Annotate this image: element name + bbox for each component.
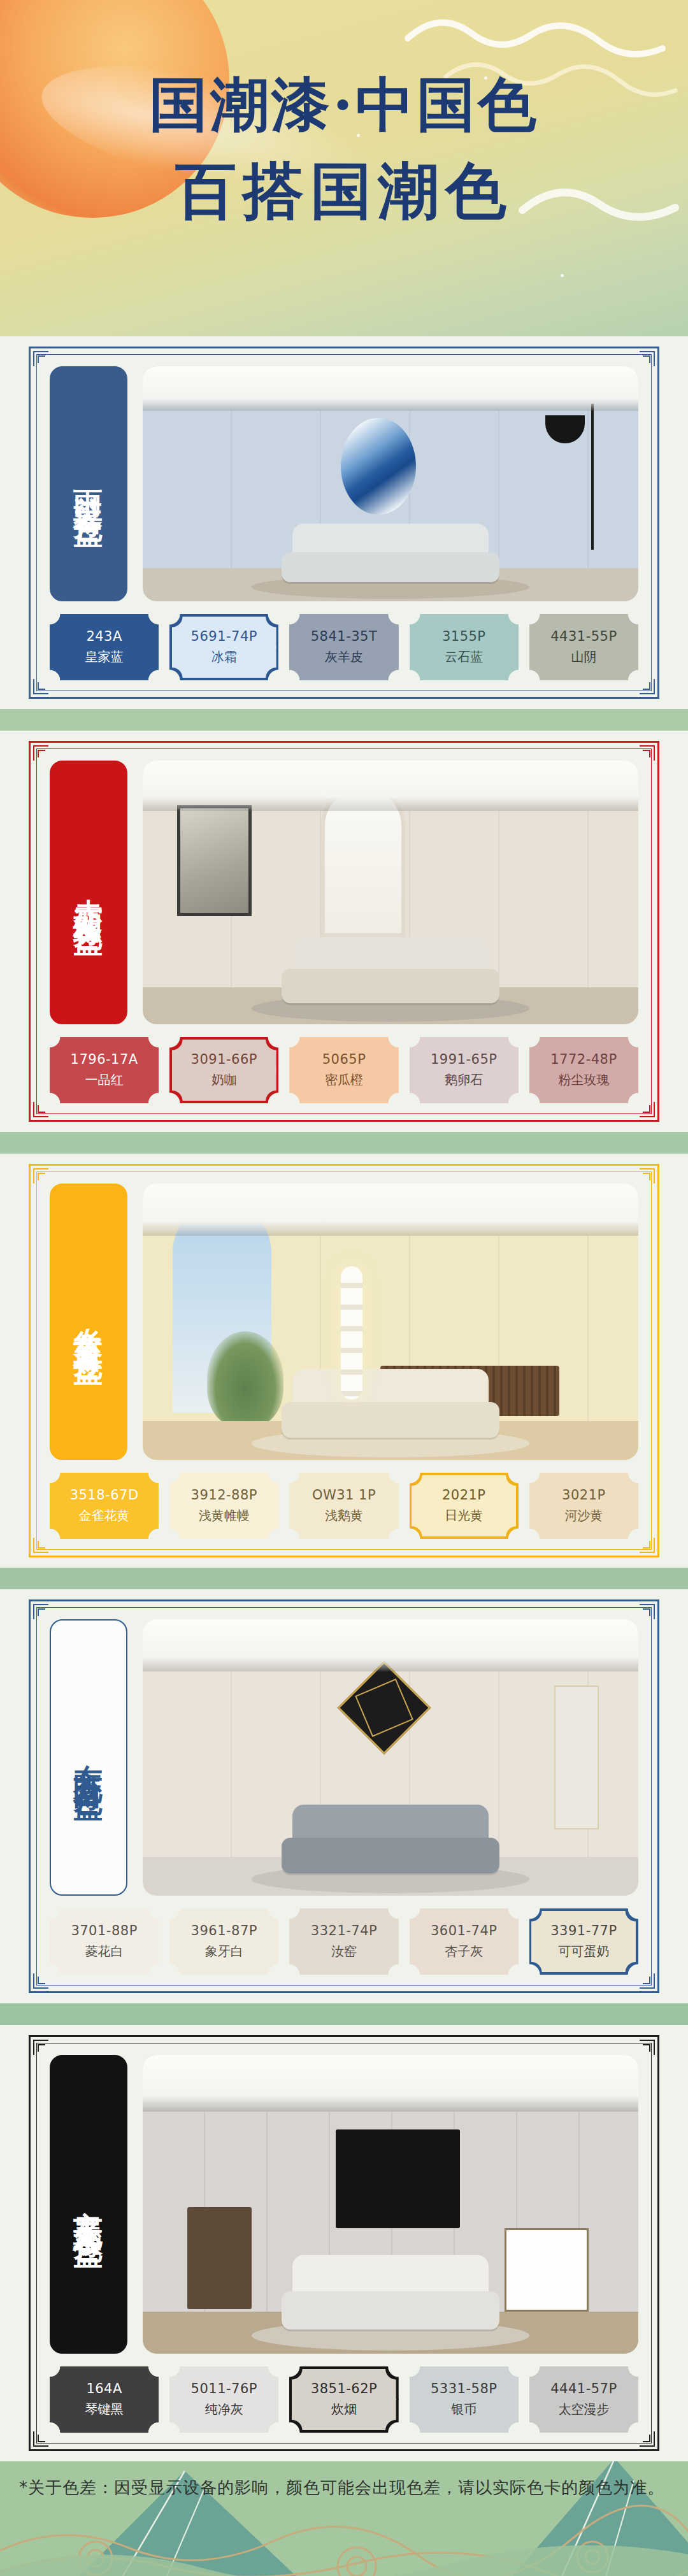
frame-corner-ornament xyxy=(640,1604,655,1619)
color-swatch: 4441-57P太空漫步 xyxy=(529,2366,638,2433)
poster-page: 国潮漆·中国色 百搭国潮色 雨过天青色盘 xyxy=(0,0,688,2576)
swatch-name: 一品红 xyxy=(85,1071,124,1089)
palette-title-banner: 炎黄至尊色盘 xyxy=(50,1184,127,1460)
swatch-name: 奶咖 xyxy=(211,1071,237,1089)
swatch-name: 皇家蓝 xyxy=(85,648,124,666)
swatch-code: 4441-57P xyxy=(550,2381,617,2396)
swatch-name: 琴键黑 xyxy=(85,2401,124,2418)
frame-corner-ornament xyxy=(640,1168,655,1184)
paper-lamp xyxy=(341,1266,362,1399)
swatch-code: 3321-74P xyxy=(311,1923,377,1938)
card-frame: 雨过天青色盘 243A皇家蓝5691-74P冰霜5841-35T灰羊皮3155P… xyxy=(29,347,659,699)
color-swatch: 1796-17A一品红 xyxy=(50,1037,159,1103)
palette-title-banner: 赤霞如练色盘 xyxy=(50,761,127,1024)
swatch-code: 3701-88P xyxy=(71,1923,137,1938)
color-disclaimer: *关于色差：因受显示设备的影响，颜色可能会出现色差，请以实际色卡的颜色为准。 xyxy=(19,2477,664,2499)
swatch-code: 1796-17A xyxy=(71,1052,138,1067)
sofa xyxy=(282,937,499,1003)
frame-corner-ornament xyxy=(33,1102,48,1117)
frame-corner-ornament xyxy=(33,1538,48,1553)
frame-corner-ornament xyxy=(33,1168,48,1184)
swatch-name: 日光黄 xyxy=(445,1507,483,1524)
swatch-code: 3155P xyxy=(442,629,486,644)
color-swatch: 5065P密瓜橙 xyxy=(289,1037,398,1103)
swatch-code: 3851-62P xyxy=(311,2381,377,2396)
color-swatch: 3155P云石蓝 xyxy=(410,614,519,680)
swatch-code: 5331-58P xyxy=(431,2381,497,2396)
wall-art xyxy=(341,418,416,515)
palette-title-banner: 雨过天青色盘 xyxy=(50,366,127,601)
swatch-code: 1772-48P xyxy=(550,1052,617,1067)
sofa xyxy=(282,2255,499,2329)
swatch-row: 164A琴键黑5011-76P纯净灰3851-62P炊烟5331-58P银币44… xyxy=(50,2366,638,2433)
swatch-code: 5691-74P xyxy=(191,629,257,644)
frame-corner-ornament xyxy=(640,2431,655,2447)
swatch-name: 炊烟 xyxy=(331,2401,357,2418)
palette-card-dawn-white: 东方既白色盘 3701-88P菱花白3961-87P象牙白3321-74P汝窑3… xyxy=(0,1589,688,2003)
swatch-code: 164A xyxy=(86,2381,122,2396)
color-swatch: 3601-74P杏子灰 xyxy=(410,1908,519,1975)
page-title: 国潮漆·中国色 百搭国潮色 xyxy=(0,75,688,222)
room-photo xyxy=(143,761,638,1024)
swatch-row: 1796-17A一品红3091-66P奶咖5065P密瓜橙1991-65P鹅卵石… xyxy=(50,1037,638,1103)
palette-card-rain-sky-blue: 雨过天青色盘 243A皇家蓝5691-74P冰霜5841-35T灰羊皮3155P… xyxy=(0,336,688,709)
swatch-code: 3091-66P xyxy=(191,1052,257,1067)
swatch-code: 5011-76P xyxy=(191,2381,257,2396)
swatch-code: 3961-87P xyxy=(191,1923,257,1938)
color-swatch: 5011-76P纯净灰 xyxy=(169,2366,278,2433)
color-swatch: 3321-74P汝窑 xyxy=(289,1908,398,1975)
swatch-code: 2021P xyxy=(442,1487,486,1503)
color-swatch: 5841-35T灰羊皮 xyxy=(289,614,398,680)
swatch-row: 243A皇家蓝5691-74P冰霜5841-35T灰羊皮3155P云石蓝4431… xyxy=(50,614,638,680)
card-frame: 炎黄至尊色盘 3518-67D金雀花黄3912-88P浅黄帷幔OW31 1P浅鹅… xyxy=(29,1164,659,1557)
frame-corner-ornament xyxy=(33,351,48,366)
swatch-code: 3518-67D xyxy=(70,1487,139,1503)
swatch-name: 纯净灰 xyxy=(205,2401,243,2418)
swatch-name: 可可蛋奶 xyxy=(558,1943,609,1960)
framed-print xyxy=(505,2228,589,2312)
palette-card-ink-black: 玄墨无极色盘 164A琴键黑5011-76P纯净灰3851-62P炊烟5331-… xyxy=(0,2025,688,2461)
floor-lamp xyxy=(591,404,594,550)
color-swatch: 3091-66P奶咖 xyxy=(169,1037,278,1103)
swatch-name: 杏子灰 xyxy=(445,1943,483,1960)
frame-corner-ornament xyxy=(640,2040,655,2055)
swatch-name: 鹅卵石 xyxy=(445,1071,483,1089)
frame-corner-ornament xyxy=(640,745,655,761)
swatch-code: 243A xyxy=(86,629,122,644)
card-frame: 赤霞如练色盘 1796-17A一品红3091-66P奶咖5065P密瓜橙1991… xyxy=(29,741,659,1122)
swatch-name: 山阴 xyxy=(571,648,596,666)
potted-plant xyxy=(207,1331,283,1427)
color-swatch: 1991-65P鹅卵石 xyxy=(410,1037,519,1103)
poster-footer: *关于色差：因受显示设备的影响，颜色可能会出现色差，请以实际色卡的颜色为准。 xyxy=(0,2461,688,2576)
swatch-code: 4431-55P xyxy=(550,629,617,644)
tv-screen xyxy=(336,2129,460,2228)
swatch-name: 冰霜 xyxy=(211,648,237,666)
wall-art xyxy=(177,805,252,916)
room-photo xyxy=(143,2055,638,2354)
sofa xyxy=(282,1805,499,1874)
room-photo xyxy=(143,1619,638,1896)
frame-corner-ornament xyxy=(33,2431,48,2447)
swatch-code: 3391-77P xyxy=(550,1923,617,1938)
frame-corner-ornament xyxy=(33,679,48,694)
swatch-code: 3912-88P xyxy=(191,1487,257,1503)
palette-card-red-glow: 赤霞如练色盘 1796-17A一品红3091-66P奶咖5065P密瓜橙1991… xyxy=(0,731,688,1132)
sofa xyxy=(282,1369,499,1438)
swatch-name: 密瓜橙 xyxy=(325,1071,363,1089)
color-swatch: 4431-55P山阴 xyxy=(529,614,638,680)
swatch-name: 浅黄帷幔 xyxy=(199,1507,250,1524)
swatch-code: 3021P xyxy=(562,1487,606,1503)
card-frame: 玄墨无极色盘 164A琴键黑5011-76P纯净灰3851-62P炊烟5331-… xyxy=(29,2035,659,2451)
color-swatch: 3851-62P炊烟 xyxy=(289,2366,398,2433)
palette-title-banner: 玄墨无极色盘 xyxy=(50,2055,127,2354)
palette-card-imperial-yellow: 炎黄至尊色盘 3518-67D金雀花黄3912-88P浅黄帷幔OW31 1P浅鹅… xyxy=(0,1154,688,1568)
frame-corner-ornament xyxy=(33,745,48,761)
speck-decoration xyxy=(561,274,564,277)
frame-corner-ornament xyxy=(640,1102,655,1117)
swatch-code: OW31 1P xyxy=(312,1487,376,1503)
color-swatch: 3912-88P浅黄帷幔 xyxy=(169,1473,278,1539)
swatch-name: 灰羊皮 xyxy=(325,648,363,666)
swatch-name: 云石蓝 xyxy=(445,648,483,666)
swatch-row: 3518-67D金雀花黄3912-88P浅黄帷幔OW31 1P浅鹅黄2021P日… xyxy=(50,1473,638,1539)
room-photo xyxy=(143,1184,638,1460)
swatch-code: 5065P xyxy=(322,1052,366,1067)
swatch-name: 金雀花黄 xyxy=(79,1507,130,1524)
card-frame: 东方既白色盘 3701-88P菱花白3961-87P象牙白3321-74P汝窑3… xyxy=(29,1599,659,1993)
frame-corner-ornament xyxy=(640,679,655,694)
color-swatch: 243A皇家蓝 xyxy=(50,614,159,680)
color-swatch: 5691-74P冰霜 xyxy=(169,614,278,680)
swatch-name: 粉尘玫瑰 xyxy=(558,1071,609,1089)
page-title-line2: 百搭国潮色 xyxy=(0,161,688,222)
color-swatch: 5331-58P银币 xyxy=(410,2366,519,2433)
swatch-name: 银币 xyxy=(451,2401,477,2418)
frame-corner-ornament xyxy=(33,1604,48,1619)
swatch-name: 太空漫步 xyxy=(558,2401,609,2418)
color-swatch: 3961-87P象牙白 xyxy=(169,1908,278,1975)
swatch-name: 河沙黄 xyxy=(564,1507,603,1524)
frame-corner-ornament xyxy=(640,1538,655,1553)
swatch-code: 5841-35T xyxy=(311,629,378,644)
color-swatch: 3021P河沙黄 xyxy=(529,1473,638,1539)
swatch-code: 1991-65P xyxy=(431,1052,497,1067)
color-swatch: 164A琴键黑 xyxy=(50,2366,159,2433)
frame-corner-ornament xyxy=(33,1973,48,1989)
sofa xyxy=(282,524,499,582)
swatch-name: 汝窑 xyxy=(331,1943,357,1960)
color-swatch: 3701-88P菱花白 xyxy=(50,1908,159,1975)
swatch-name: 象牙白 xyxy=(205,1943,243,1960)
side-cabinet xyxy=(187,2207,252,2308)
color-swatch: 1772-48P粉尘玫瑰 xyxy=(529,1037,638,1103)
swatch-name: 浅鹅黄 xyxy=(325,1507,363,1524)
swatch-row: 3701-88P菱花白3961-87P象牙白3321-74P汝窑3601-74P… xyxy=(50,1908,638,1975)
color-swatch: 2021P日光黄 xyxy=(410,1473,519,1539)
room-photo xyxy=(143,366,638,601)
poster-header: 国潮漆·中国色 百搭国潮色 xyxy=(0,0,688,336)
frame-corner-ornament xyxy=(640,1973,655,1989)
page-title-line1: 国潮漆·中国色 xyxy=(0,75,688,134)
swatch-code: 3601-74P xyxy=(431,1923,497,1938)
color-swatch: 3518-67D金雀花黄 xyxy=(50,1473,159,1539)
color-swatch: OW31 1P浅鹅黄 xyxy=(289,1473,398,1539)
swatch-name: 菱花白 xyxy=(85,1943,124,1960)
frame-corner-ornament xyxy=(640,351,655,366)
frame-corner-ornament xyxy=(33,2040,48,2055)
palette-title-banner: 东方既白色盘 xyxy=(50,1619,127,1896)
color-swatch: 3391-77P可可蛋奶 xyxy=(529,1908,638,1975)
